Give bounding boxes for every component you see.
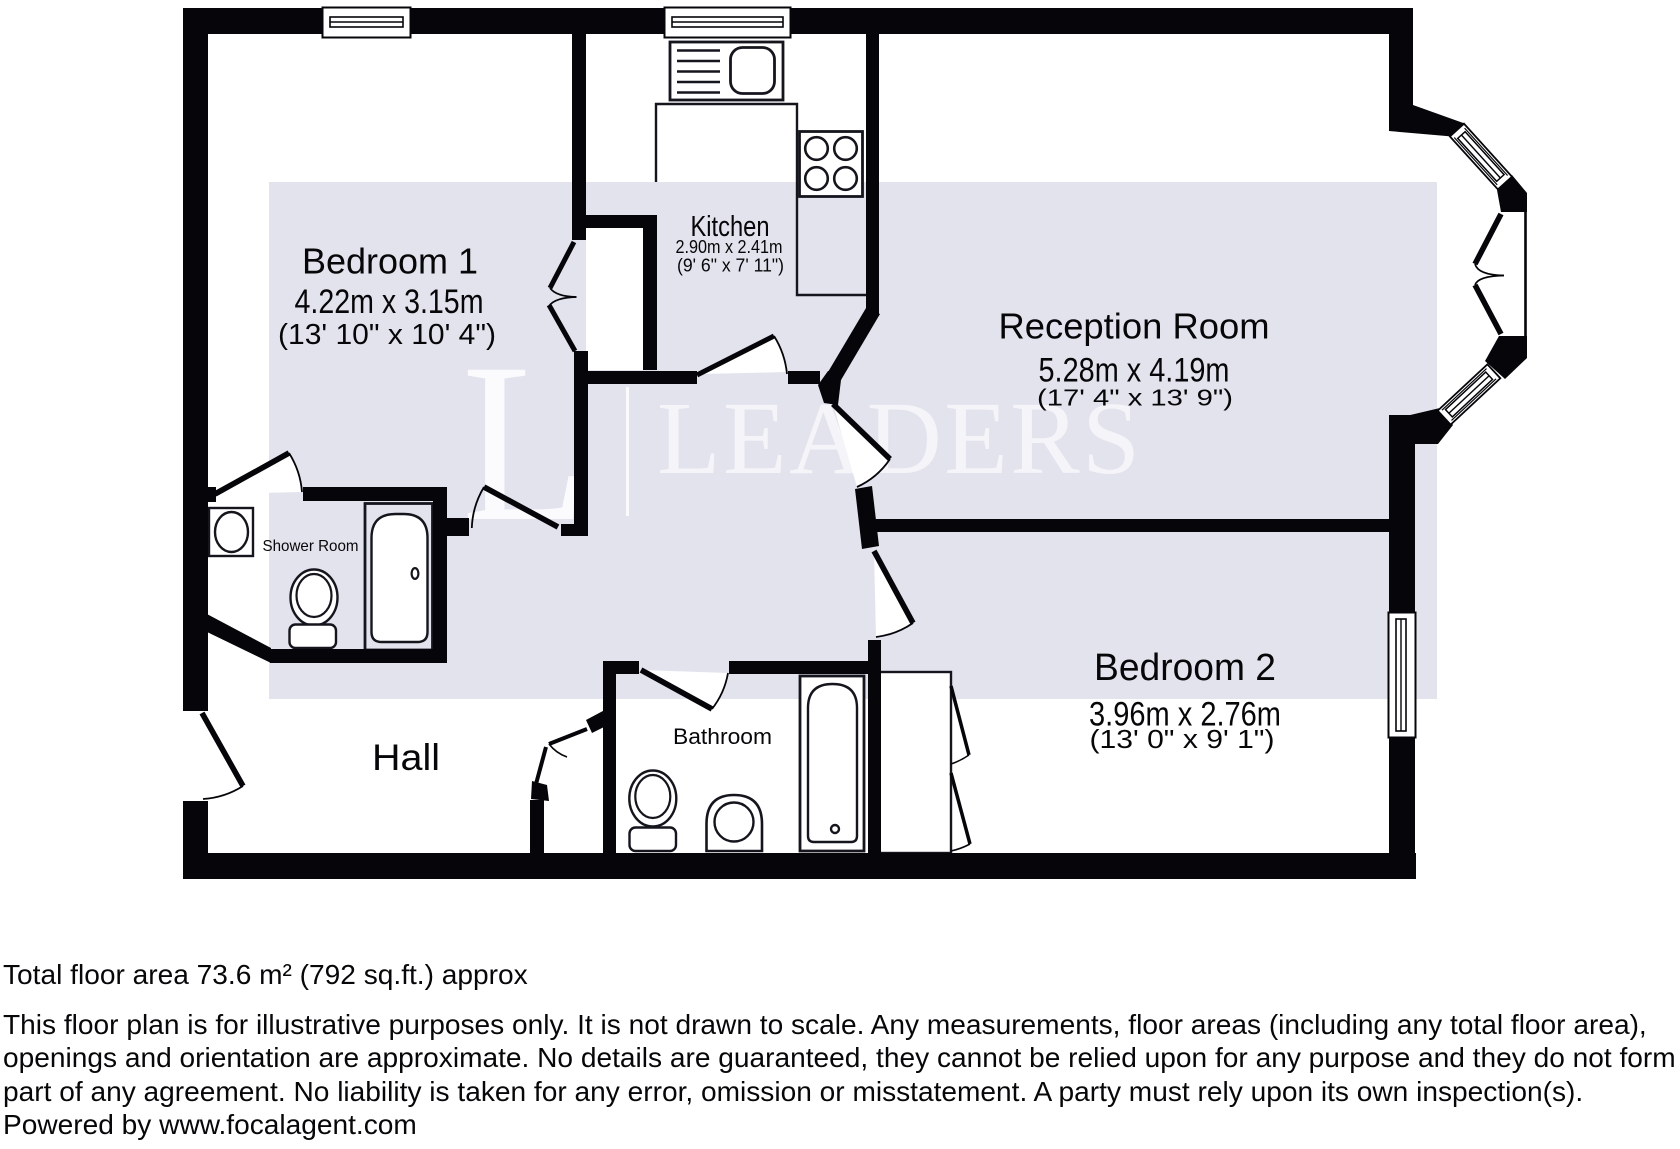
svg-text:Shower Room: Shower Room [263, 538, 359, 555]
svg-text:4.22m x 3.15m: 4.22m x 3.15m [295, 283, 484, 321]
svg-text:Bedroom 1: Bedroom 1 [302, 241, 478, 282]
svg-text:Bedroom 2: Bedroom 2 [1094, 647, 1276, 689]
svg-text:(17' 4" x 13' 9"): (17' 4" x 13' 9") [1037, 385, 1233, 411]
svg-text:(13' 0" x 9' 1"): (13' 0" x 9' 1") [1090, 726, 1275, 754]
svg-text:Hall: Hall [372, 737, 440, 778]
svg-text:Reception Room: Reception Room [999, 306, 1270, 347]
svg-text:2.90m x 2.41m: 2.90m x 2.41m [676, 237, 783, 257]
svg-text:(13' 10" x 10' 4"): (13' 10" x 10' 4") [278, 319, 496, 351]
svg-text:(9' 6" x 7' 11"): (9' 6" x 7' 11") [677, 256, 784, 276]
svg-text:Bathroom: Bathroom [673, 724, 772, 749]
